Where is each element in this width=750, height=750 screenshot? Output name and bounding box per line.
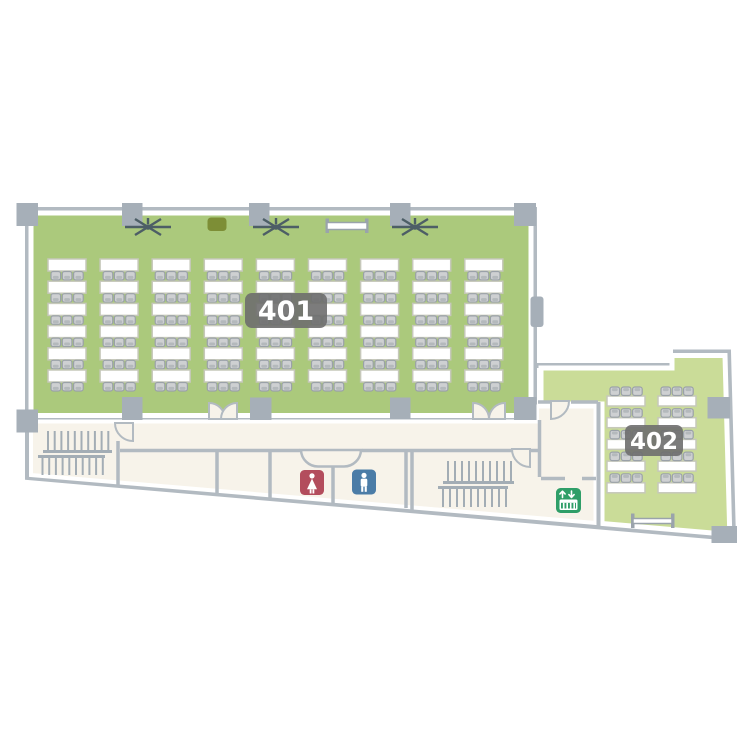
chair bbox=[62, 316, 72, 325]
chair bbox=[126, 383, 136, 392]
chair bbox=[468, 383, 478, 392]
chair bbox=[633, 409, 643, 418]
table bbox=[256, 259, 294, 280]
chair bbox=[312, 272, 322, 281]
chair bbox=[103, 316, 113, 325]
chair bbox=[672, 474, 682, 483]
chair bbox=[271, 383, 281, 392]
chair bbox=[438, 360, 448, 369]
chair bbox=[364, 360, 374, 369]
chair bbox=[51, 338, 61, 347]
table bbox=[309, 348, 347, 369]
chair bbox=[386, 383, 396, 392]
chair bbox=[334, 338, 344, 347]
table bbox=[152, 281, 190, 302]
chair bbox=[661, 387, 671, 396]
chair bbox=[490, 338, 500, 347]
chair bbox=[219, 360, 229, 369]
room-402-label: 402 bbox=[630, 429, 678, 455]
table bbox=[204, 281, 242, 302]
chair bbox=[438, 294, 448, 303]
chair bbox=[427, 338, 437, 347]
table bbox=[48, 370, 86, 391]
chair bbox=[479, 294, 489, 303]
table bbox=[48, 303, 86, 324]
chair bbox=[230, 316, 240, 325]
chair bbox=[323, 383, 333, 392]
chair bbox=[479, 316, 489, 325]
table bbox=[309, 370, 347, 391]
chair bbox=[312, 360, 322, 369]
room-401-label: 401 bbox=[258, 296, 314, 327]
chair bbox=[219, 383, 229, 392]
chair bbox=[51, 316, 61, 325]
chair bbox=[178, 272, 188, 281]
chair bbox=[427, 360, 437, 369]
table bbox=[413, 348, 451, 369]
chair bbox=[610, 452, 620, 461]
chair bbox=[427, 316, 437, 325]
chair bbox=[633, 387, 643, 396]
chair bbox=[375, 383, 385, 392]
chair bbox=[323, 338, 333, 347]
chair bbox=[114, 360, 124, 369]
chair bbox=[207, 272, 217, 281]
chair bbox=[74, 338, 84, 347]
chair bbox=[126, 316, 136, 325]
chair bbox=[114, 316, 124, 325]
chair bbox=[375, 294, 385, 303]
floor-plan-page: 401 402 bbox=[0, 0, 750, 750]
chair bbox=[207, 338, 217, 347]
table bbox=[465, 348, 503, 369]
table bbox=[658, 387, 696, 406]
chair bbox=[468, 316, 478, 325]
chair bbox=[207, 383, 217, 392]
chair bbox=[438, 316, 448, 325]
chair bbox=[490, 294, 500, 303]
column bbox=[712, 526, 738, 543]
chair bbox=[219, 316, 229, 325]
chair bbox=[334, 360, 344, 369]
chair bbox=[167, 360, 177, 369]
chair bbox=[364, 294, 374, 303]
chair bbox=[479, 383, 489, 392]
chair bbox=[479, 272, 489, 281]
room-401-badge[interactable]: 401 bbox=[245, 293, 327, 328]
floor-plan: 401 402 bbox=[0, 0, 750, 750]
table bbox=[658, 474, 696, 493]
table bbox=[48, 259, 86, 280]
chair bbox=[178, 316, 188, 325]
table bbox=[100, 303, 138, 324]
chair bbox=[155, 383, 165, 392]
chair bbox=[661, 474, 671, 483]
chair bbox=[230, 383, 240, 392]
table bbox=[413, 326, 451, 347]
restroom-vestibule bbox=[301, 450, 361, 467]
chair bbox=[490, 383, 500, 392]
chair bbox=[259, 272, 269, 281]
table bbox=[152, 348, 190, 369]
chair bbox=[230, 338, 240, 347]
chair bbox=[259, 360, 269, 369]
chair bbox=[375, 316, 385, 325]
table bbox=[465, 259, 503, 280]
table bbox=[256, 326, 294, 347]
chair bbox=[207, 294, 217, 303]
chair bbox=[416, 360, 426, 369]
table bbox=[361, 281, 399, 302]
chair bbox=[126, 272, 136, 281]
table bbox=[48, 348, 86, 369]
chair bbox=[178, 338, 188, 347]
chair bbox=[672, 409, 682, 418]
column bbox=[390, 398, 411, 420]
table bbox=[465, 281, 503, 302]
chair bbox=[490, 360, 500, 369]
male-restroom-icon bbox=[352, 470, 376, 495]
chair bbox=[312, 338, 322, 347]
chair bbox=[126, 338, 136, 347]
chair bbox=[103, 294, 113, 303]
chair bbox=[479, 360, 489, 369]
chair bbox=[167, 316, 177, 325]
chair bbox=[103, 383, 113, 392]
chair bbox=[621, 409, 631, 418]
chair bbox=[427, 272, 437, 281]
chair bbox=[114, 272, 124, 281]
chair bbox=[259, 338, 269, 347]
chair bbox=[684, 474, 694, 483]
chair bbox=[103, 338, 113, 347]
table bbox=[607, 409, 645, 428]
chair bbox=[479, 338, 489, 347]
chair bbox=[62, 272, 72, 281]
table bbox=[413, 281, 451, 302]
chair bbox=[364, 338, 374, 347]
table bbox=[361, 370, 399, 391]
table bbox=[413, 303, 451, 324]
chair bbox=[167, 338, 177, 347]
table bbox=[48, 326, 86, 347]
chair bbox=[126, 360, 136, 369]
table bbox=[100, 370, 138, 391]
chair bbox=[282, 272, 292, 281]
table bbox=[204, 348, 242, 369]
table bbox=[465, 370, 503, 391]
chair bbox=[230, 272, 240, 281]
chair bbox=[219, 272, 229, 281]
chair bbox=[230, 360, 240, 369]
chair bbox=[271, 360, 281, 369]
chair bbox=[334, 294, 344, 303]
table bbox=[465, 326, 503, 347]
podium bbox=[208, 218, 227, 232]
table bbox=[152, 259, 190, 280]
chair bbox=[386, 316, 396, 325]
chair bbox=[282, 338, 292, 347]
column bbox=[708, 397, 731, 419]
chair bbox=[155, 294, 165, 303]
chair bbox=[468, 272, 478, 281]
elevator-icon bbox=[556, 488, 581, 513]
table bbox=[658, 409, 696, 428]
table bbox=[413, 370, 451, 391]
chair bbox=[155, 360, 165, 369]
chair bbox=[271, 272, 281, 281]
table bbox=[204, 259, 242, 280]
chair bbox=[114, 338, 124, 347]
chair bbox=[427, 383, 437, 392]
chair bbox=[468, 294, 478, 303]
female-restroom-icon bbox=[300, 470, 324, 495]
table bbox=[100, 326, 138, 347]
chair bbox=[271, 338, 281, 347]
chair bbox=[438, 383, 448, 392]
table bbox=[361, 326, 399, 347]
chair bbox=[178, 294, 188, 303]
chair bbox=[323, 272, 333, 281]
chair bbox=[259, 383, 269, 392]
table bbox=[361, 348, 399, 369]
chair bbox=[386, 360, 396, 369]
chair bbox=[178, 360, 188, 369]
chair bbox=[62, 383, 72, 392]
chair bbox=[468, 360, 478, 369]
column bbox=[514, 203, 536, 226]
chair bbox=[74, 360, 84, 369]
chair bbox=[610, 387, 620, 396]
table bbox=[607, 474, 645, 493]
column bbox=[122, 397, 143, 420]
chair bbox=[51, 272, 61, 281]
table bbox=[361, 303, 399, 324]
chair bbox=[62, 294, 72, 303]
table bbox=[465, 303, 503, 324]
chair bbox=[74, 272, 84, 281]
chair bbox=[490, 272, 500, 281]
chair bbox=[334, 316, 344, 325]
chair bbox=[684, 387, 694, 396]
chair bbox=[416, 383, 426, 392]
table bbox=[152, 303, 190, 324]
chair bbox=[684, 452, 694, 461]
chair bbox=[364, 316, 374, 325]
chair bbox=[207, 360, 217, 369]
chair bbox=[610, 474, 620, 483]
chair bbox=[416, 294, 426, 303]
column bbox=[250, 398, 272, 421]
table bbox=[100, 348, 138, 369]
table bbox=[100, 259, 138, 280]
chair bbox=[103, 360, 113, 369]
table bbox=[152, 326, 190, 347]
chair bbox=[219, 338, 229, 347]
chair bbox=[364, 272, 374, 281]
chair bbox=[386, 272, 396, 281]
table bbox=[256, 370, 294, 391]
chair bbox=[114, 294, 124, 303]
chair bbox=[167, 294, 177, 303]
chair bbox=[684, 430, 694, 439]
chair bbox=[684, 409, 694, 418]
chair bbox=[364, 383, 374, 392]
chair bbox=[375, 360, 385, 369]
chair bbox=[375, 272, 385, 281]
chair bbox=[334, 383, 344, 392]
table bbox=[309, 326, 347, 347]
chair bbox=[386, 294, 396, 303]
table bbox=[413, 259, 451, 280]
chair bbox=[282, 360, 292, 369]
chair bbox=[219, 294, 229, 303]
chair bbox=[386, 338, 396, 347]
table bbox=[204, 370, 242, 391]
chair bbox=[155, 338, 165, 347]
column bbox=[17, 203, 39, 226]
chair bbox=[621, 474, 631, 483]
chair bbox=[672, 387, 682, 396]
chair bbox=[74, 294, 84, 303]
chair bbox=[610, 409, 620, 418]
column bbox=[531, 297, 544, 328]
chair bbox=[62, 360, 72, 369]
column bbox=[249, 203, 270, 226]
chair bbox=[334, 272, 344, 281]
table bbox=[361, 259, 399, 280]
chair bbox=[51, 294, 61, 303]
chair bbox=[416, 272, 426, 281]
table bbox=[48, 281, 86, 302]
chair bbox=[167, 383, 177, 392]
chair bbox=[62, 338, 72, 347]
chair bbox=[155, 316, 165, 325]
chair bbox=[167, 272, 177, 281]
room-402-badge[interactable]: 402 bbox=[625, 425, 683, 456]
chair bbox=[621, 387, 631, 396]
column bbox=[514, 397, 537, 420]
chair bbox=[375, 338, 385, 347]
chair bbox=[103, 272, 113, 281]
column bbox=[17, 410, 39, 433]
chair bbox=[126, 294, 136, 303]
chair bbox=[427, 294, 437, 303]
chair bbox=[438, 272, 448, 281]
chair bbox=[282, 383, 292, 392]
table bbox=[204, 303, 242, 324]
chair bbox=[74, 383, 84, 392]
chair bbox=[438, 338, 448, 347]
chair bbox=[416, 338, 426, 347]
table bbox=[100, 281, 138, 302]
chair bbox=[468, 338, 478, 347]
chair bbox=[178, 383, 188, 392]
chair bbox=[490, 316, 500, 325]
chair bbox=[323, 360, 333, 369]
chair bbox=[633, 474, 643, 483]
chair bbox=[230, 294, 240, 303]
chair bbox=[416, 316, 426, 325]
chair bbox=[74, 316, 84, 325]
table bbox=[152, 370, 190, 391]
chair bbox=[155, 272, 165, 281]
table bbox=[309, 259, 347, 280]
table bbox=[256, 348, 294, 369]
table bbox=[607, 387, 645, 406]
table bbox=[204, 326, 242, 347]
chair bbox=[312, 383, 322, 392]
chair bbox=[610, 430, 620, 439]
chair bbox=[114, 383, 124, 392]
chair bbox=[207, 316, 217, 325]
chair bbox=[51, 360, 61, 369]
chair bbox=[51, 383, 61, 392]
chair bbox=[661, 409, 671, 418]
